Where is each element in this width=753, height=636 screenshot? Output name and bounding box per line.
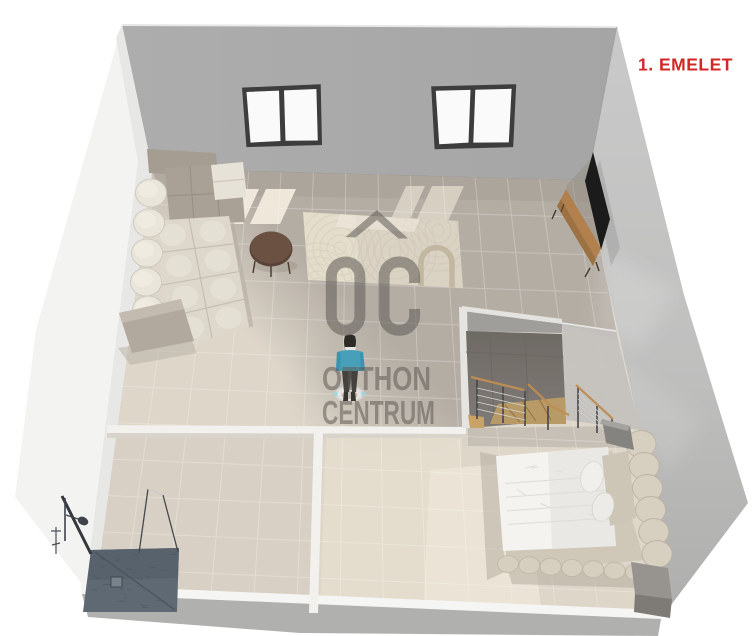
- svg-text:CENTRUM: CENTRUM: [322, 394, 435, 431]
- svg-text:1. EMELET: 1. EMELET: [638, 55, 733, 75]
- svg-text:OTTHON: OTTHON: [322, 360, 431, 397]
